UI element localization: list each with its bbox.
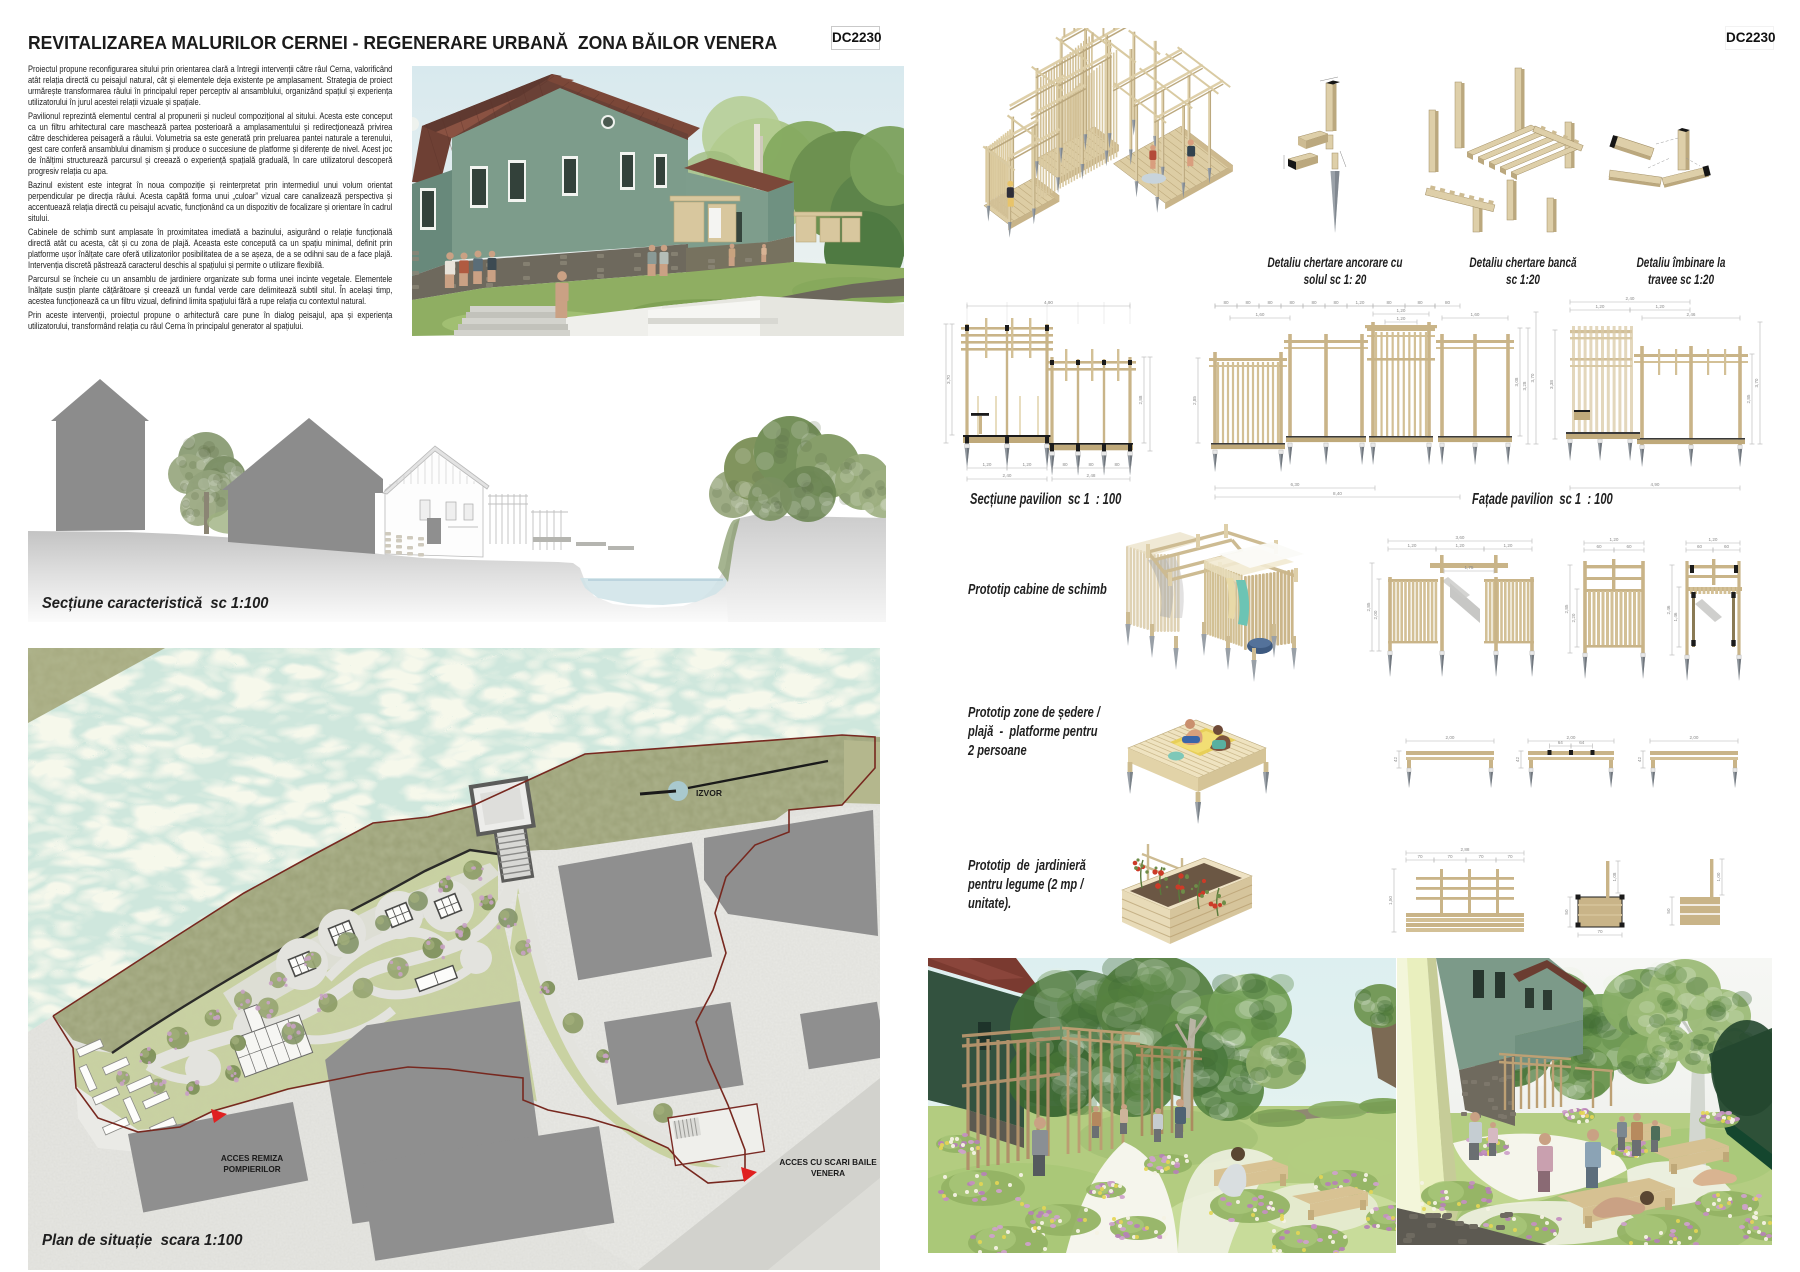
svg-text:80: 80 (1245, 300, 1251, 305)
svg-text:Fațade pavilion sc 1 : 100: Fațade pavilion sc 1 : 100 (1472, 490, 1613, 507)
svg-text:3,70: 3,70 (1754, 378, 1759, 387)
svg-text:1,20: 1,20 (1709, 537, 1718, 542)
svg-text:80: 80 (1062, 462, 1068, 467)
svg-text:2,46: 2,46 (1666, 605, 1671, 614)
svg-text:70: 70 (1478, 854, 1484, 859)
svg-text:80: 80 (1333, 300, 1339, 305)
svg-text:ACCES CU SCARI BAILE: ACCES CU SCARI BAILE (779, 1158, 877, 1167)
svg-text:2,88: 2,88 (1461, 847, 1470, 852)
svg-text:1,20: 1,20 (1610, 537, 1619, 542)
svg-text:80: 80 (1417, 300, 1423, 305)
svg-text:2,85: 2,85 (1564, 604, 1569, 613)
svg-text:1,20: 1,20 (1023, 462, 1032, 467)
svg-text:2,85: 2,85 (1366, 602, 1371, 611)
svg-text:60: 60 (1626, 544, 1632, 549)
svg-text:3,70: 3,70 (1530, 373, 1535, 382)
svg-text:2,00: 2,00 (1373, 610, 1378, 619)
svg-text:64: 64 (1558, 740, 1564, 745)
svg-text:1,46: 1,46 (1673, 612, 1678, 621)
svg-text:80: 80 (1311, 300, 1317, 305)
svg-text:2,85: 2,85 (1746, 394, 1751, 403)
svg-text:Secțiune pavilion sc 1 : 100: Secțiune pavilion sc 1 : 100 (970, 490, 1122, 507)
svg-text:1,50: 1,50 (1388, 896, 1393, 905)
svg-text:50: 50 (1666, 908, 1671, 914)
svg-text:80: 80 (1223, 300, 1229, 305)
svg-text:80: 80 (1088, 462, 1094, 467)
svg-text:1,60: 1,60 (1256, 312, 1265, 317)
svg-text:6,30: 6,30 (1291, 482, 1300, 487)
svg-text:1,20: 1,20 (983, 462, 992, 467)
svg-text:80: 80 (1386, 300, 1392, 305)
svg-text:2,20: 2,20 (1571, 613, 1576, 622)
svg-text:8,40: 8,40 (1333, 491, 1342, 496)
svg-text:2,40: 2,40 (1626, 296, 1635, 301)
svg-text:2,88: 2,88 (1138, 395, 1143, 404)
svg-text:Secțiune caracteristică sc 1:: Secțiune caracteristică sc 1:100 (42, 594, 269, 612)
svg-text:3,08: 3,08 (1514, 377, 1519, 386)
svg-text:VENERA: VENERA (811, 1169, 845, 1178)
svg-text:42: 42 (1393, 757, 1398, 763)
svg-text:4,90: 4,90 (1651, 482, 1660, 487)
svg-text:1,20: 1,20 (1504, 543, 1513, 548)
svg-text:60: 60 (1697, 544, 1703, 549)
svg-text:64: 64 (1579, 740, 1585, 745)
svg-text:2,85: 2,85 (1192, 396, 1197, 405)
svg-text:2,00: 2,00 (1446, 735, 1455, 740)
svg-text:1,20: 1,20 (1356, 300, 1365, 305)
svg-text:Plan de situație scara 1:100: Plan de situație scara 1:100 (42, 1232, 243, 1250)
svg-text:60: 60 (1724, 544, 1730, 549)
svg-text:1,00: 1,00 (1716, 872, 1721, 881)
svg-text:2,00: 2,00 (1690, 735, 1699, 740)
svg-text:3,28: 3,28 (1522, 381, 1527, 390)
svg-text:1,20: 1,20 (1596, 304, 1605, 309)
svg-text:1,20: 1,20 (1397, 316, 1406, 321)
svg-text:80: 80 (1445, 300, 1451, 305)
svg-text:IZVOR: IZVOR (696, 788, 722, 798)
svg-text:70: 70 (1447, 854, 1453, 859)
svg-text:1,75: 1,75 (1465, 565, 1474, 570)
svg-text:1,20: 1,20 (1408, 543, 1417, 548)
svg-text:70: 70 (1507, 854, 1513, 859)
svg-text:ACCES REMIZA: ACCES REMIZA (221, 1154, 283, 1163)
svg-text:2,48: 2,48 (1087, 473, 1096, 478)
svg-text:POMPIERILOR: POMPIERILOR (223, 1165, 280, 1174)
svg-text:3,60: 3,60 (1456, 535, 1465, 540)
svg-text:1,20: 1,20 (1656, 304, 1665, 309)
svg-text:1,20: 1,20 (1456, 543, 1465, 548)
svg-text:50: 50 (1564, 909, 1569, 915)
svg-text:70: 70 (1417, 854, 1423, 859)
svg-text:1,08: 1,08 (1612, 872, 1617, 881)
svg-text:3,38: 3,38 (1549, 380, 1554, 389)
svg-text:4,90: 4,90 (1044, 300, 1053, 305)
svg-text:60: 60 (1596, 544, 1602, 549)
svg-text:2,40: 2,40 (1003, 473, 1012, 478)
svg-text:80: 80 (1289, 300, 1295, 305)
svg-text:42: 42 (1637, 757, 1642, 763)
svg-text:3,70: 3,70 (946, 375, 951, 384)
svg-text:80: 80 (1114, 462, 1120, 467)
svg-text:1,20: 1,20 (1397, 308, 1406, 313)
svg-text:1,60: 1,60 (1471, 312, 1480, 317)
svg-text:2,00: 2,00 (1567, 735, 1576, 740)
svg-text:42: 42 (1515, 757, 1520, 763)
svg-text:80: 80 (1267, 300, 1273, 305)
svg-text:70: 70 (1597, 929, 1603, 934)
svg-text:2,46: 2,46 (1687, 312, 1696, 317)
